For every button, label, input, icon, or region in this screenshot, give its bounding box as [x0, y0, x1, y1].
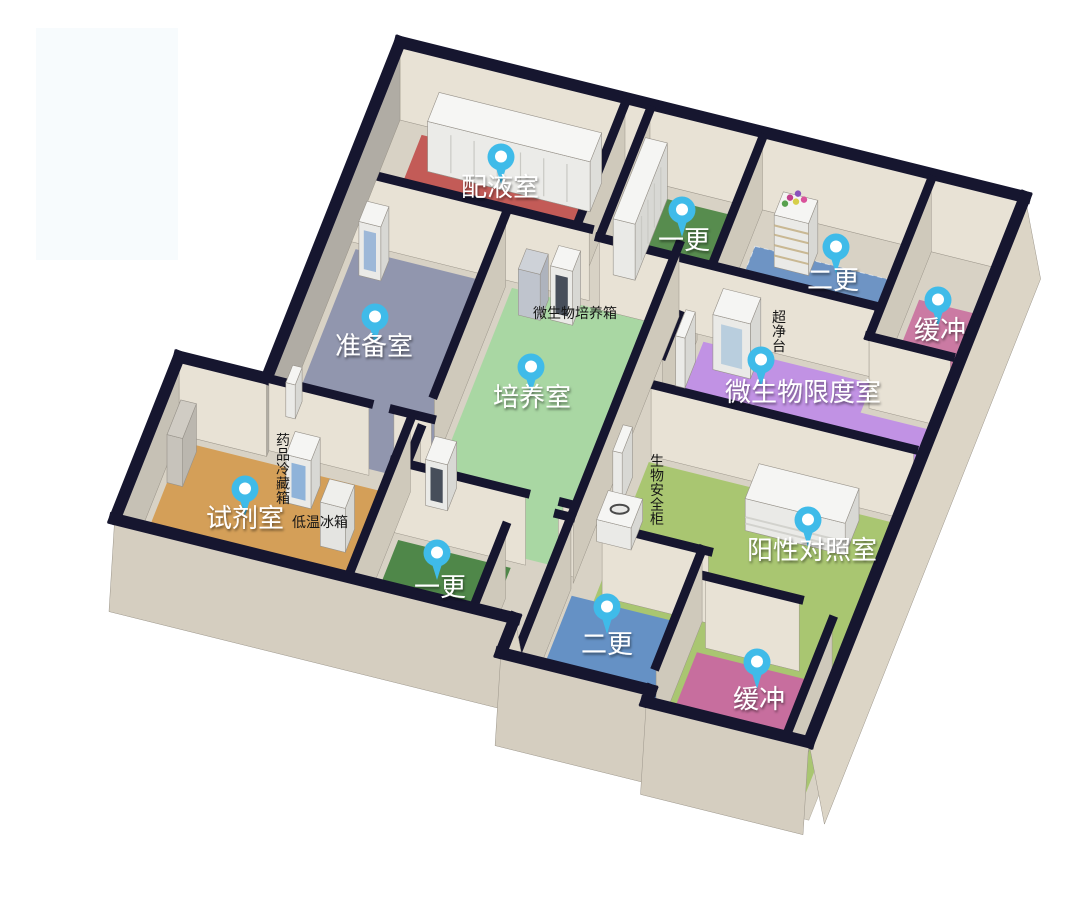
- room-label-ergeng_bottom: 二更: [581, 630, 633, 660]
- equipment-medicine-fridge-unit: [286, 431, 320, 508]
- room-label-huanchong_top: 缓冲: [914, 316, 966, 346]
- room-label-huanchong_bottom: 缓冲: [733, 685, 785, 715]
- equipment-sample-cabinet: [359, 201, 389, 281]
- pin-hole: [802, 514, 814, 526]
- room-label-shijishi: 试剂室: [206, 504, 284, 534]
- equipment-label-biosafety-cabinet: 生物安全柜: [650, 454, 664, 528]
- pin-hole: [932, 294, 944, 306]
- floorplan-svg: 微生物培养箱超净台生物安全柜药品冷藏箱低温冰箱配液室一更二更缓冲准备室培养室微生…: [0, 0, 1068, 918]
- equipment-label-medicine-fridge: 药品冷藏箱: [276, 433, 290, 507]
- pin-hole: [830, 241, 842, 253]
- pin-hole: [495, 151, 507, 163]
- lab-floorplan-canvas: 微生物培养箱超净台生物安全柜药品冷藏箱低温冰箱配液室一更二更缓冲准备室培养室微生…: [0, 0, 1068, 918]
- pin-hole: [369, 311, 381, 323]
- room-label-yigeng_bottom: 一更: [414, 573, 466, 603]
- room-label-peiyeshi: 配液室: [461, 173, 539, 203]
- room-label-zhunbeishi: 准备室: [335, 332, 413, 362]
- equipment-flower-shelf: [774, 190, 818, 275]
- room-label-peiyangshi: 培养室: [493, 383, 571, 413]
- pin-hole: [676, 204, 688, 216]
- pin-hole: [239, 483, 251, 495]
- pin-hole: [601, 601, 613, 613]
- equipment-incubator-c: [426, 436, 457, 511]
- room-label-weishengwu_xiandushi: 微生物限度室: [725, 378, 881, 408]
- room-label-ergeng_top: 二更: [807, 266, 859, 296]
- room-label-yangxing_duizhaoshi: 阳性对照室: [747, 536, 877, 566]
- watermark-panel: [36, 28, 178, 260]
- equipment-label-microbial-incubator: 微生物培养箱: [533, 306, 617, 322]
- room-label-yigeng_top: 一更: [658, 226, 710, 256]
- pin-hole: [525, 361, 537, 373]
- equipment-label-low-temp-freezer: 低温冰箱: [292, 515, 348, 531]
- pin-hole: [755, 354, 767, 366]
- pin-hole: [431, 547, 443, 559]
- pin-hole: [751, 656, 763, 668]
- equipment-label-clean-bench: 超净台: [772, 310, 786, 355]
